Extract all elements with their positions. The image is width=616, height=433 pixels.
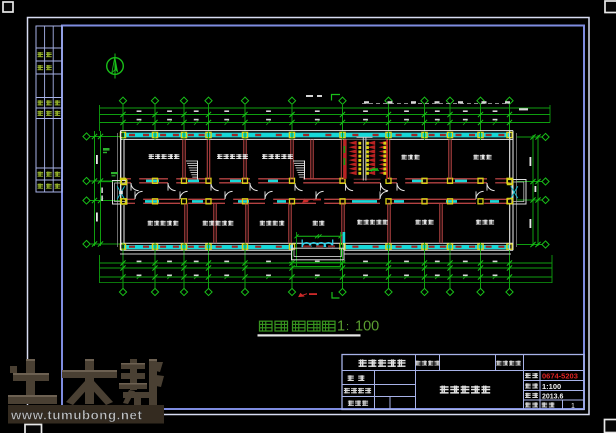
svg-text::: : [346,321,349,333]
svg-text:0674-5203: 0674-5203 [542,372,578,381]
svg-text:1:100: 1:100 [542,382,561,391]
svg-text:100: 100 [355,319,379,335]
svg-text:1: 1 [571,403,575,410]
svg-text:2013.6: 2013.6 [542,393,564,400]
svg-text:www.tumubong.net: www.tumubong.net [10,408,142,423]
svg-text:1: 1 [337,319,345,335]
